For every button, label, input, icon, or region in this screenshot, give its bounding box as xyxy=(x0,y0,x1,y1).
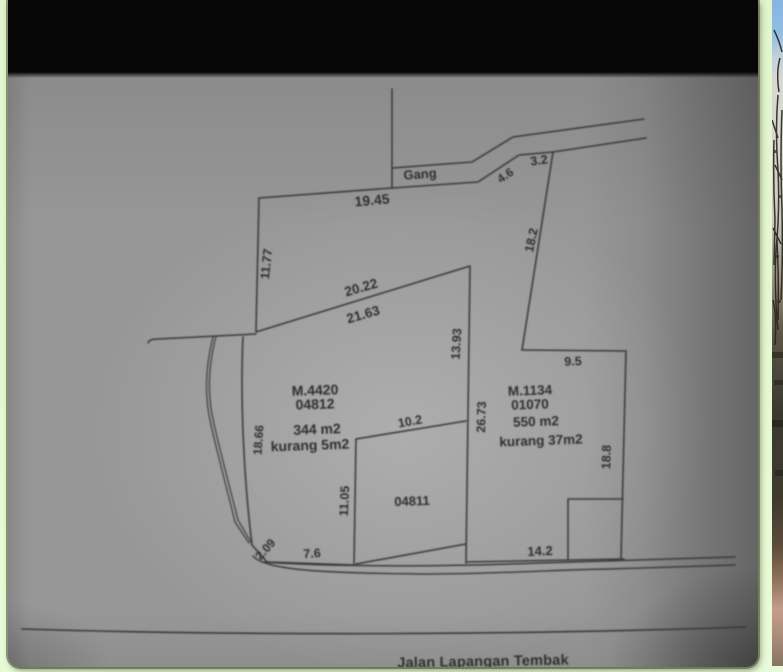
svg-text:7.6: 7.6 xyxy=(303,546,321,561)
svg-text:04811: 04811 xyxy=(394,493,430,509)
svg-text:3.2: 3.2 xyxy=(529,152,548,168)
svg-text:14.2: 14.2 xyxy=(527,543,553,559)
svg-text:4.6: 4.6 xyxy=(494,165,516,186)
svg-text:11.77: 11.77 xyxy=(258,248,275,280)
svg-text:18.8: 18.8 xyxy=(599,445,614,470)
svg-text:01070: 01070 xyxy=(511,396,549,412)
svg-text:10.2: 10.2 xyxy=(397,412,423,430)
svg-text:11.05: 11.05 xyxy=(337,485,353,516)
svg-text:Jalan Lapangan Tembak: Jalan Lapangan Tembak xyxy=(397,652,570,667)
svg-text:Gang: Gang xyxy=(403,165,437,182)
svg-text:18.66: 18.66 xyxy=(250,424,266,455)
svg-text:13.93: 13.93 xyxy=(449,328,465,360)
svg-text:kurang 37m2: kurang 37m2 xyxy=(499,432,583,450)
svg-text:26.73: 26.73 xyxy=(474,401,489,433)
svg-text:kurang 5m2: kurang 5m2 xyxy=(270,436,349,455)
svg-text:19.45: 19.45 xyxy=(354,190,391,209)
svg-text:9.5: 9.5 xyxy=(564,354,582,369)
svg-text:21.63: 21.63 xyxy=(345,302,382,326)
svg-text:04812: 04812 xyxy=(295,395,335,412)
svg-text:550 m2: 550 m2 xyxy=(513,413,559,430)
